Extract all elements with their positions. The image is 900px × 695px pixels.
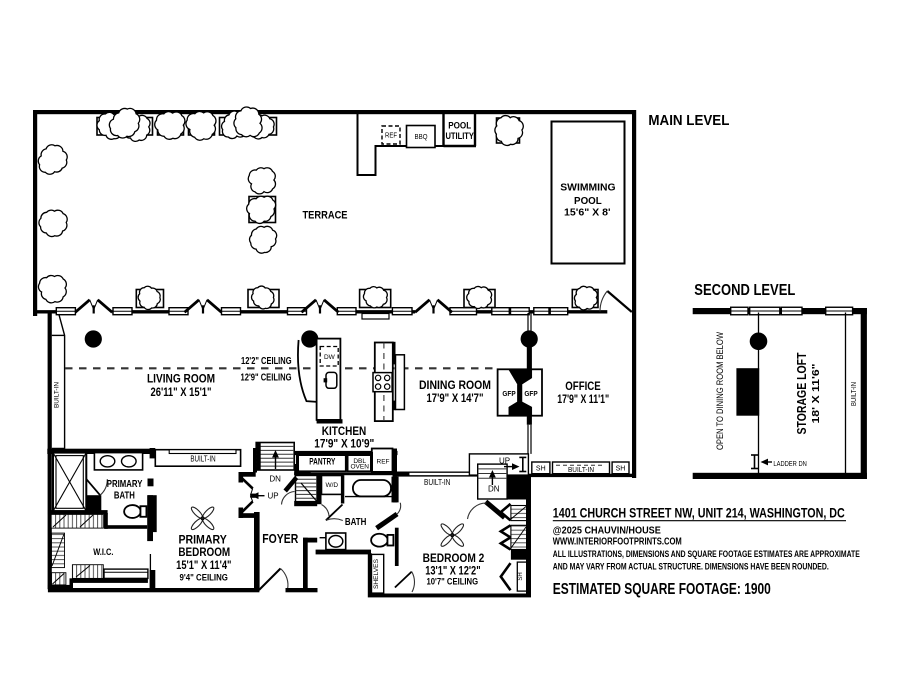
svg-text:17'9" X 14'7": 17'9" X 14'7" (427, 391, 484, 405)
svg-text:10'7" CEILING: 10'7" CEILING (427, 577, 479, 588)
svg-text:DINING ROOM: DINING ROOM (419, 378, 491, 392)
svg-text:LIVING ROOM: LIVING ROOM (147, 372, 215, 386)
svg-text:SH: SH (616, 466, 626, 473)
svg-text:SHELVES: SHELVES (373, 558, 380, 589)
svg-text:13'1" X 12'2": 13'1" X 12'2" (425, 564, 480, 578)
svg-text:SH: SH (518, 572, 524, 580)
svg-text:15'6" X 8': 15'6" X 8' (564, 207, 611, 219)
svg-text:POOL: POOL (448, 121, 471, 132)
svg-text:BEDROOM: BEDROOM (178, 545, 230, 559)
svg-text:DN: DN (269, 475, 281, 484)
svg-text:ESTIMATED SQUARE FOOTAGE: 1900: ESTIMATED SQUARE FOOTAGE: 1900 (553, 581, 771, 598)
svg-text:18' X 11'6": 18' X 11'6" (810, 363, 822, 423)
svg-text:GFP: GFP (502, 389, 515, 398)
svg-text:W/D: W/D (325, 482, 338, 489)
svg-text:UP: UP (499, 456, 510, 465)
svg-text:OPEN TO DINING ROOM BELOW: OPEN TO DINING ROOM BELOW (715, 332, 725, 450)
svg-text:DW: DW (324, 354, 336, 361)
svg-text:BUILT-IN: BUILT-IN (424, 478, 451, 487)
svg-text:REF: REF (377, 459, 390, 466)
svg-text:BUILT-IN: BUILT-IN (568, 467, 594, 474)
svg-text:UP: UP (268, 491, 279, 500)
svg-text:BATH: BATH (114, 490, 135, 502)
svg-text:12'9" CEILING: 12'9" CEILING (241, 373, 292, 384)
svg-text:26'11" X 15'1": 26'11" X 15'1" (151, 385, 212, 399)
svg-text:LADDER DN: LADDER DN (773, 459, 806, 468)
svg-text:SECOND LEVEL: SECOND LEVEL (694, 282, 795, 299)
svg-text:BBQ: BBQ (415, 134, 428, 141)
svg-text:WWW.INTERIORFOOTPRINTS.COM: WWW.INTERIORFOOTPRINTS.COM (553, 536, 682, 548)
svg-text:PRIMARY: PRIMARY (107, 478, 143, 490)
svg-text:BUILT-IN: BUILT-IN (54, 382, 61, 408)
svg-text:9'4" CEILING: 9'4" CEILING (180, 573, 228, 584)
svg-text:UTILITY: UTILITY (445, 131, 474, 142)
svg-text:BUILT-IN: BUILT-IN (190, 454, 215, 463)
svg-text:15'1" X 11'4": 15'1" X 11'4" (176, 558, 231, 572)
svg-text:1401 CHURCH STREET NW, UNIT 21: 1401 CHURCH STREET NW, UNIT 214, WASHING… (553, 506, 845, 521)
svg-text:TERRACE: TERRACE (303, 210, 348, 222)
svg-text:17'9" X 11'1": 17'9" X 11'1" (557, 392, 609, 406)
svg-text:OFFICE: OFFICE (565, 379, 601, 393)
svg-text:BATH: BATH (345, 517, 367, 528)
svg-text:MAIN LEVEL: MAIN LEVEL (648, 112, 729, 129)
svg-text:17'9" X 10'9": 17'9" X 10'9" (314, 437, 374, 451)
svg-text:DN: DN (488, 485, 500, 494)
svg-text:ALL ILLUSTRATIONS, DIMENSIONS: ALL ILLUSTRATIONS, DIMENSIONS AND SQUARE… (553, 549, 860, 559)
svg-text:W.I.C.: W.I.C. (93, 547, 113, 558)
svg-text:SWIMMING: SWIMMING (560, 182, 615, 194)
svg-text:GFP: GFP (524, 389, 537, 398)
svg-text:STORAGE LOFT: STORAGE LOFT (794, 352, 809, 434)
svg-text:PANTRY: PANTRY (309, 456, 335, 466)
svg-text:REF: REF (385, 133, 397, 140)
svg-text:SH: SH (536, 466, 546, 473)
svg-text:POOL: POOL (574, 195, 602, 207)
svg-text:12'2" CEILING: 12'2" CEILING (241, 356, 292, 367)
svg-text:AND MAY VARY FROM ACTUAL STRUC: AND MAY VARY FROM ACTUAL STRUCTURE. DIME… (553, 561, 829, 571)
svg-text:OVEN: OVEN (350, 463, 369, 470)
svg-text:BUILT-IN: BUILT-IN (851, 382, 858, 406)
svg-text:FOYER: FOYER (262, 532, 298, 546)
